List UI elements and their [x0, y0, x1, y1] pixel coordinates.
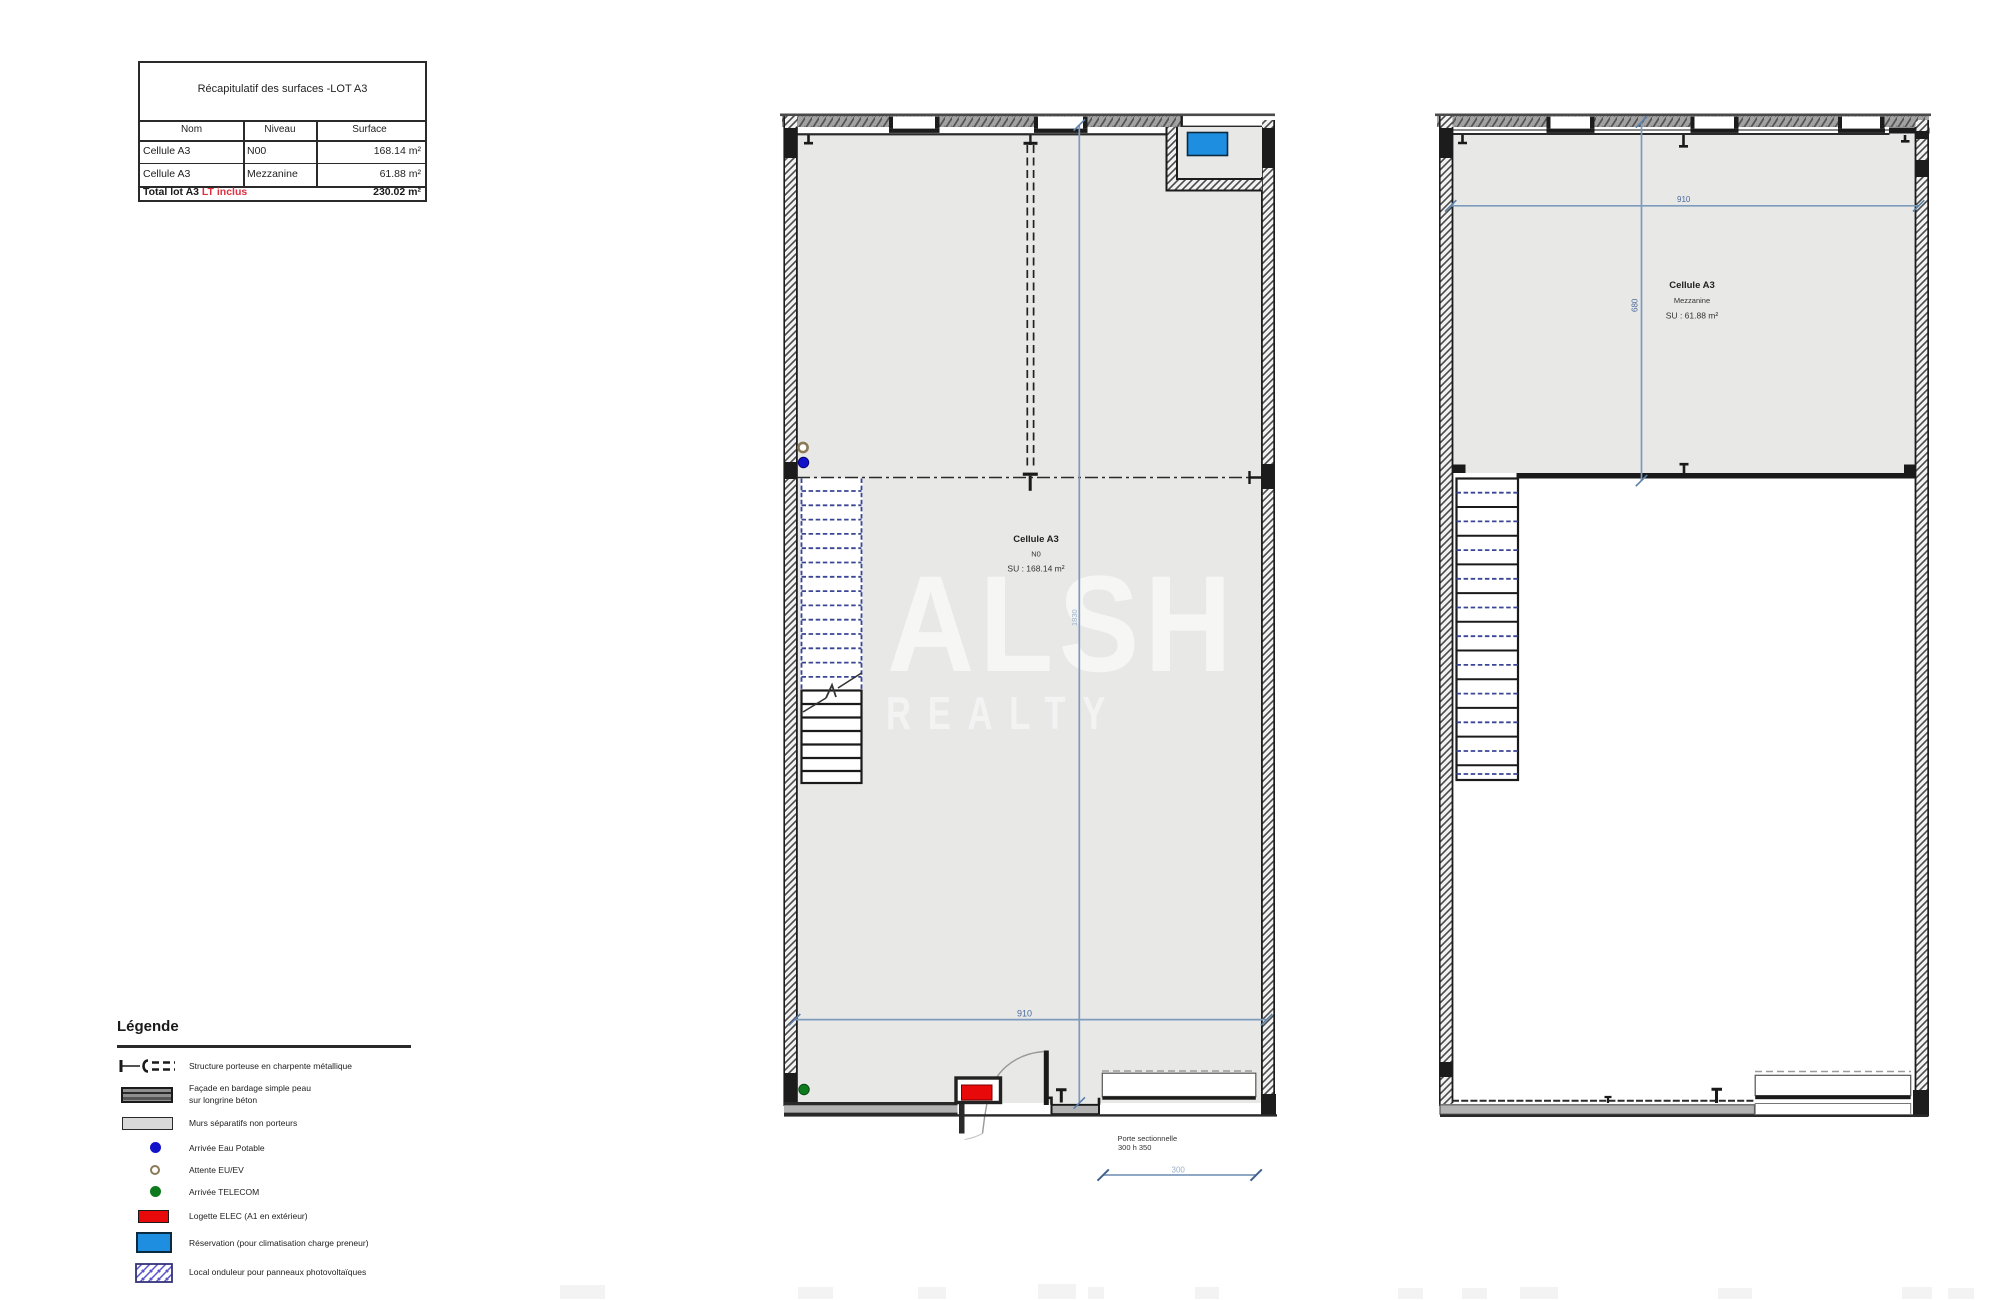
svg-text:910: 910: [1017, 1009, 1032, 1019]
svg-text:Porte sectionnelle: Porte sectionnelle: [1118, 1134, 1178, 1143]
svg-text:910: 910: [1677, 195, 1691, 204]
svg-text:Mezzanine: Mezzanine: [1674, 296, 1710, 305]
svg-text:300 h 350: 300 h 350: [1118, 1143, 1151, 1152]
svg-text:300: 300: [1172, 1166, 1186, 1175]
svg-text:SU : 168.14 m²: SU : 168.14 m²: [1007, 564, 1064, 574]
svg-text:680: 680: [1631, 298, 1640, 312]
svg-text:1830: 1830: [1070, 609, 1079, 626]
svg-text:N0: N0: [1031, 550, 1041, 559]
svg-text:Cellule A3: Cellule A3: [1013, 534, 1059, 545]
svg-text:SU : 61.88 m²: SU : 61.88 m²: [1666, 311, 1719, 321]
svg-text:Cellule A3: Cellule A3: [1669, 280, 1715, 291]
svg-text:REALTY: REALTY: [886, 687, 1122, 739]
